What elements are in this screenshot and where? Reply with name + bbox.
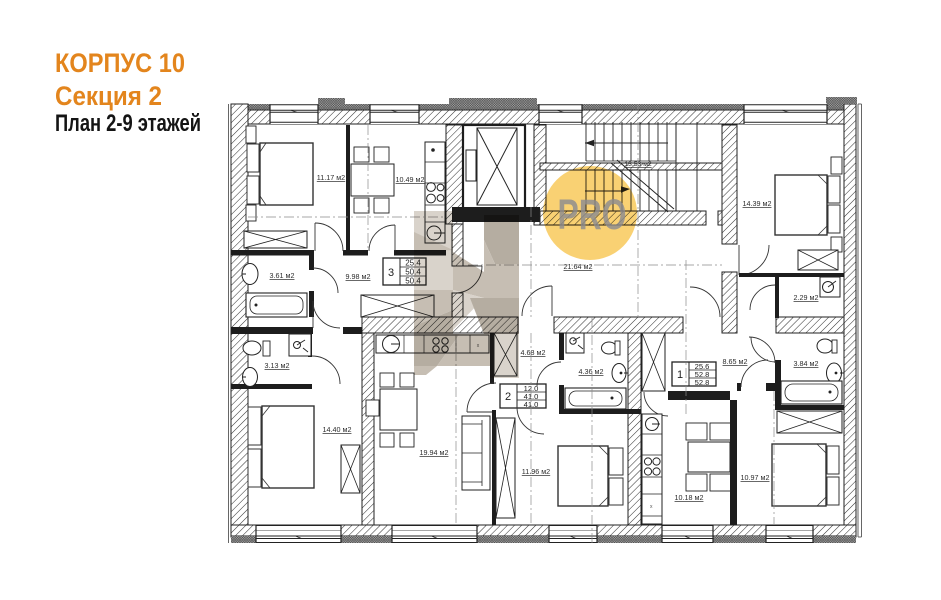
svg-text:10.97 м2: 10.97 м2 (741, 473, 770, 482)
svg-text:14.40 м2: 14.40 м2 (323, 425, 352, 434)
svg-text:10.49 м2: 10.49 м2 (396, 175, 425, 184)
svg-text:21.64 м2: 21.64 м2 (564, 262, 593, 271)
svg-text:3: 3 (388, 267, 394, 279)
svg-text:План 2-9 этажей: План 2-9 этажей (55, 110, 201, 137)
svg-text:Секция 2: Секция 2 (55, 81, 162, 111)
svg-text:4.36 м2: 4.36 м2 (579, 367, 604, 376)
svg-text:КОРПУС 10: КОРПУС 10 (55, 48, 185, 78)
svg-text:10.18 м2: 10.18 м2 (675, 493, 704, 502)
svg-text:52.8: 52.8 (695, 378, 710, 387)
svg-text:3.61 м2: 3.61 м2 (270, 271, 295, 280)
svg-text:1: 1 (677, 369, 683, 381)
svg-text:3.84 м2: 3.84 м2 (794, 359, 819, 368)
svg-text:11.96 м2: 11.96 м2 (522, 467, 550, 476)
svg-text:2.29 м2: 2.29 м2 (794, 293, 819, 302)
svg-text:8.65 м2: 8.65 м2 (723, 357, 748, 366)
svg-text:14.39 м2: 14.39 м2 (743, 199, 772, 208)
svg-text:11.17 м2: 11.17 м2 (317, 173, 345, 182)
svg-text:3.13 м2: 3.13 м2 (265, 361, 290, 370)
svg-text:9.98 м2: 9.98 м2 (346, 272, 371, 281)
svg-text:4.68 м2: 4.68 м2 (521, 348, 546, 357)
svg-text:PRO: PRO (558, 191, 627, 239)
svg-text:2: 2 (505, 391, 511, 403)
svg-text:19.94 м2: 19.94 м2 (420, 448, 449, 457)
